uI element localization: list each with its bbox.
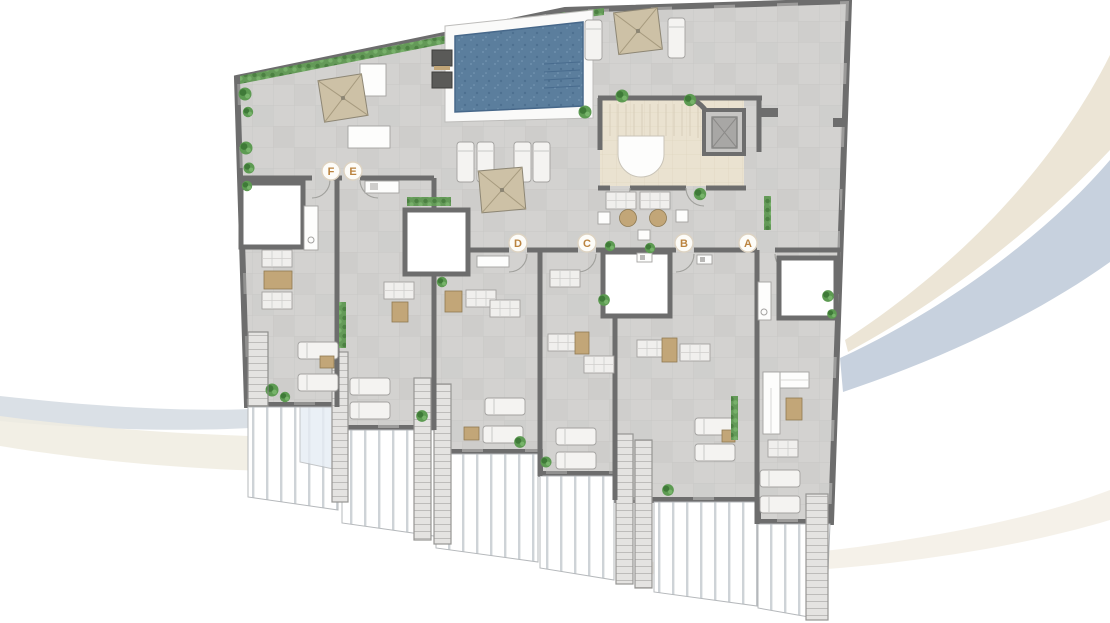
pool-water <box>455 22 583 112</box>
lounger <box>298 374 338 391</box>
plant <box>416 410 428 422</box>
plant <box>437 277 447 287</box>
round-table <box>650 210 667 227</box>
pool-equipment-icon <box>432 72 452 88</box>
chairs <box>550 270 580 287</box>
skylight-unit-a <box>779 258 836 318</box>
parasol-icon <box>318 74 368 122</box>
plant <box>598 294 610 306</box>
railing-b <box>654 502 757 606</box>
lounger <box>350 378 390 395</box>
stair-e-d-1 <box>414 378 431 540</box>
lounger <box>485 398 525 415</box>
lounger <box>695 444 735 461</box>
plant <box>827 309 837 319</box>
pool-equipment-shelf <box>434 66 450 70</box>
outdoor-table <box>606 192 636 209</box>
parasol-icon <box>478 167 525 213</box>
stair-e-d-2 <box>434 384 451 544</box>
parasol-icon <box>614 7 663 54</box>
plant <box>605 241 615 251</box>
elevator <box>704 110 744 154</box>
unit-badge-b-label: B <box>680 238 688 250</box>
unit-badge-f: F <box>322 162 340 180</box>
lounger <box>760 496 800 513</box>
table <box>392 302 408 322</box>
kitchenette <box>758 282 771 320</box>
stair-a <box>806 494 828 620</box>
unit-badge-c-label: C <box>583 238 591 250</box>
unit-badge-e: E <box>344 162 362 180</box>
plant <box>645 243 655 253</box>
side-table <box>464 427 479 440</box>
plant <box>514 436 526 448</box>
unit-badge-d: D <box>509 234 527 252</box>
wall-stub <box>833 118 846 127</box>
chair <box>638 230 650 240</box>
sun-lounger <box>668 18 685 58</box>
sun-lounger <box>457 142 474 182</box>
round-table <box>620 210 637 227</box>
unit-badge-a: A <box>739 234 757 252</box>
unit-badge-c: C <box>578 234 596 252</box>
chair <box>676 210 688 222</box>
vine-planter <box>339 302 346 348</box>
chairs <box>262 250 292 267</box>
building: F E D C B A <box>237 1 849 620</box>
chairs <box>680 344 710 361</box>
sun-lounger <box>585 20 602 60</box>
table <box>264 271 292 289</box>
stair-f <box>248 332 268 406</box>
skylight-unit-f <box>241 183 303 247</box>
plant <box>280 392 290 402</box>
chairs <box>490 300 520 317</box>
pool-equipment-icon <box>432 50 452 66</box>
chairs <box>584 356 614 373</box>
planter <box>407 197 451 206</box>
sun-table <box>348 126 390 148</box>
plant <box>662 484 674 496</box>
floor-plan-page: F E D C B A <box>0 0 1110 623</box>
lounger <box>350 402 390 419</box>
chairs <box>548 334 578 351</box>
table <box>445 291 462 312</box>
pool <box>432 10 593 122</box>
coffee-table <box>786 398 802 420</box>
skylight-unit-e-d <box>405 210 468 274</box>
sun-lounger <box>533 142 550 182</box>
floor-plan-canvas: F E D C B A <box>0 0 1110 623</box>
plant <box>266 384 279 397</box>
unit-badge-a-label: A <box>744 238 752 250</box>
unit-badge-e-label: E <box>349 166 356 178</box>
lounger <box>760 470 800 487</box>
lounger <box>556 428 596 445</box>
kitchenette <box>477 256 509 267</box>
plant <box>540 456 551 467</box>
unit-badge-d-label: D <box>514 238 522 250</box>
outdoor-table <box>640 192 670 209</box>
table <box>575 332 589 354</box>
lounger <box>556 452 596 469</box>
skylight-unit-c-b <box>603 252 670 316</box>
plant <box>822 290 834 302</box>
swoosh-blue-right <box>840 160 1110 392</box>
stair-c-b-2 <box>635 440 652 588</box>
railing-c <box>540 476 614 580</box>
chairs <box>262 292 292 309</box>
unit-badge-b: B <box>675 234 693 252</box>
sofa-l-side <box>763 372 780 434</box>
vine-planter <box>731 396 738 440</box>
unit-badge-f-label: F <box>328 166 335 178</box>
chairs <box>384 282 414 299</box>
vine-planter <box>764 196 771 230</box>
side-table <box>320 356 334 368</box>
core-stair-void <box>618 136 664 177</box>
chair <box>598 212 610 224</box>
chairs <box>768 440 798 457</box>
stair-c-b-1 <box>616 434 633 584</box>
table <box>662 338 677 362</box>
